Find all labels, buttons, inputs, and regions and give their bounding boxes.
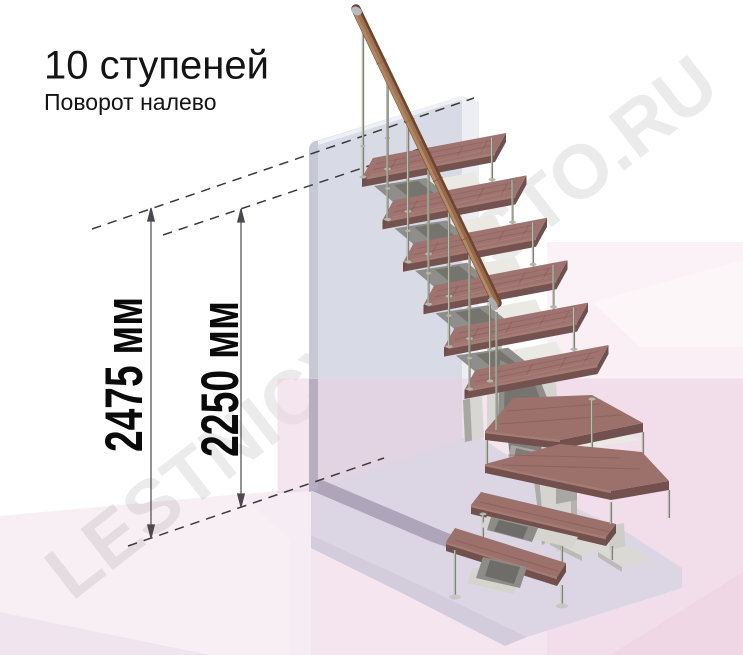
- svg-text:Поворот налево: Поворот налево: [44, 89, 217, 115]
- svg-text:2250 мм: 2250 мм: [191, 301, 250, 457]
- svg-text:2475 мм: 2475 мм: [95, 297, 154, 452]
- svg-text:10 ступеней: 10 ступеней: [44, 44, 269, 88]
